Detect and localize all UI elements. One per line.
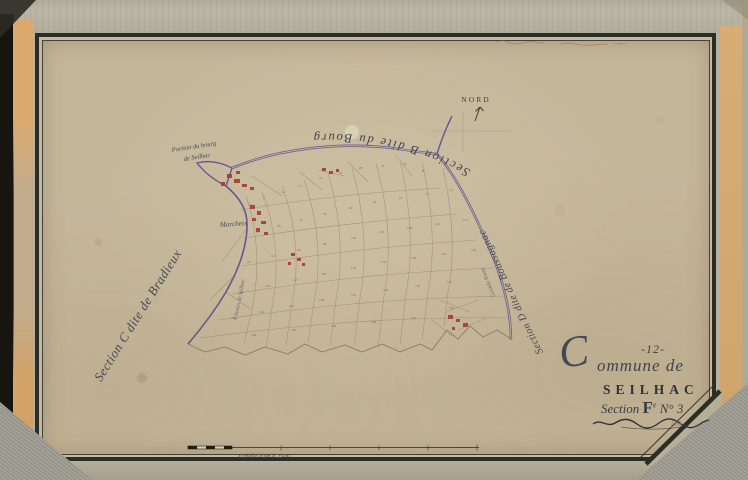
scan-mat-top <box>0 0 748 33</box>
section-exponent: e <box>653 401 657 410</box>
scan-edge-strip <box>0 14 14 480</box>
section-reference: Section Fe N° 3 <box>601 398 683 418</box>
tape-strip-left <box>13 20 34 428</box>
scan-mat-bottom <box>0 462 748 480</box>
commune-label: ommune de <box>597 356 684 376</box>
scan-edge-right <box>742 0 748 480</box>
section-letter: F <box>643 398 653 417</box>
flourish-underline <box>591 416 711 430</box>
pencil-note: f.61 <box>671 420 682 428</box>
commune-initial: C <box>556 324 592 379</box>
section-word: Section <box>601 401 639 416</box>
tape-strip-right <box>720 26 742 462</box>
sheet-number: -12- <box>641 342 665 357</box>
commune-name: SEILHAC <box>603 382 699 398</box>
section-number: N° 3 <box>660 401 684 416</box>
title-block: -12- C ommune de SEILHAC Section Fe N° 3… <box>545 330 715 434</box>
